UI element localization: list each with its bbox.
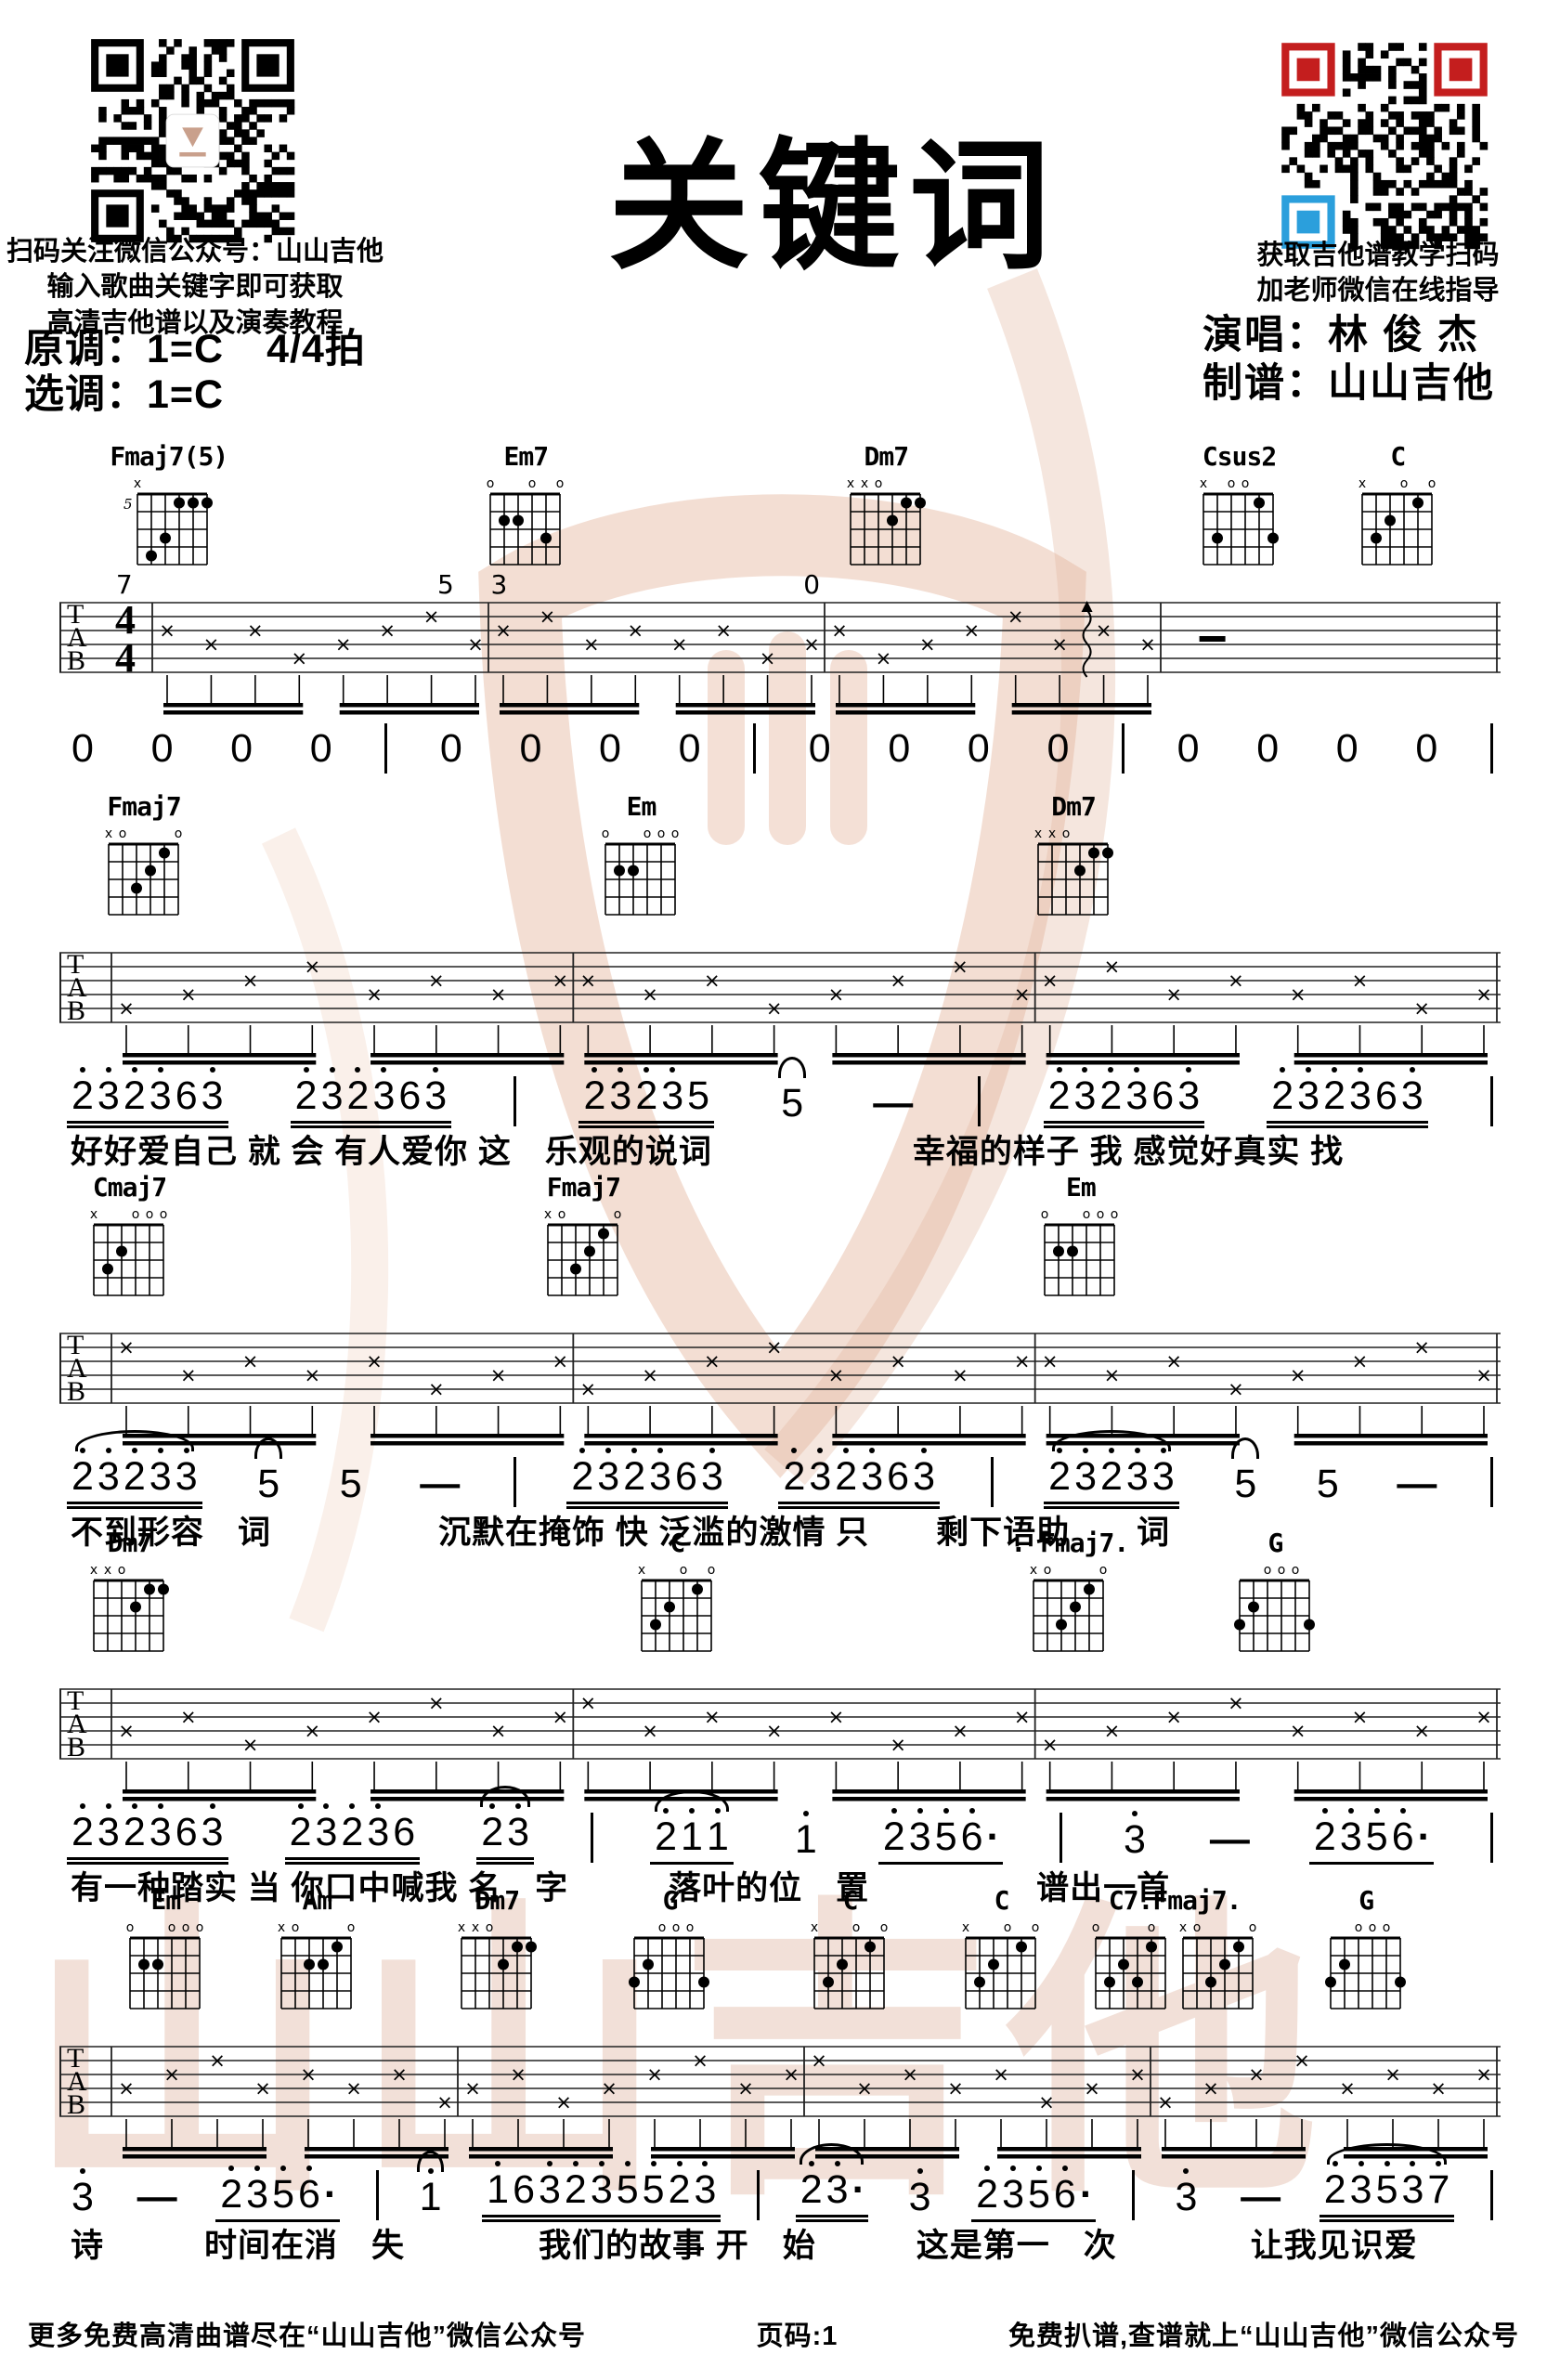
svg-text:×: ×: [1104, 1364, 1121, 1386]
chord-grid: xoo: [276, 1916, 358, 2014]
svg-text:×: ×: [1038, 2091, 1055, 2113]
chord-name: Em: [600, 791, 682, 822]
svg-text:o: o: [1083, 1207, 1091, 1222]
svg-text:×: ×: [671, 633, 688, 656]
svg-text:×: ×: [552, 1350, 569, 1372]
chord-diagram: Csus2xoo: [1198, 441, 1280, 570]
svg-text:×: ×: [1352, 1350, 1369, 1372]
qr-right-caption-line2: 加老师微信在线指导: [1211, 273, 1545, 308]
svg-text:o: o: [486, 1920, 494, 1935]
svg-text:×: ×: [766, 997, 783, 1020]
jianpu-token: 5: [776, 1081, 808, 1128]
svg-text:o: o: [1041, 1207, 1049, 1222]
svg-text:×: ×: [811, 2049, 827, 2072]
svg-text:x: x: [1030, 1563, 1037, 1578]
svg-text:×: ×: [580, 1692, 597, 1714]
svg-text:×: ×: [828, 1706, 845, 1728]
jianpu-token: 232363: [1267, 1073, 1428, 1128]
jianpu-token: 0: [1410, 726, 1442, 774]
jianpu-line: 0000000000000000: [67, 723, 1493, 774]
chord-grid: ooo: [1234, 1558, 1317, 1657]
key-info: 原调：1=C4/4拍 选调：1=C: [24, 327, 366, 419]
svg-text:o: o: [1099, 1563, 1108, 1578]
svg-text:×: ×: [366, 1706, 383, 1728]
svg-text:o: o: [672, 1920, 681, 1935]
jianpu-line: 3—2356·116323552323·32356·3—23537: [67, 2167, 1493, 2222]
system-5: EmooooAmxooDm7xxoGoooCxooCxooC7.Fmaj7.oo…: [59, 1885, 1501, 2256]
chord-grid: ooo: [485, 472, 567, 570]
svg-text:×: ×: [1384, 2063, 1401, 2086]
svg-text:x: x: [104, 826, 111, 841]
svg-text:B: B: [67, 995, 85, 1026]
chord-grid: xxo: [88, 1558, 171, 1657]
jianpu-token: —: [135, 2175, 180, 2222]
svg-text:5: 5: [437, 569, 454, 600]
svg-text:×: ×: [642, 983, 658, 1006]
svg-text:×: ×: [919, 633, 936, 656]
jianpu-token: 5: [1229, 1462, 1261, 1509]
tab-staff: TAB××××××××××××××××××××××××: [59, 1652, 1501, 1812]
chord-grid: xoo: [809, 1916, 891, 2014]
jianpu-token: 0: [963, 726, 994, 774]
chord-grid: xoo: [960, 1916, 1043, 2014]
svg-text:×: ×: [118, 997, 135, 1020]
system-3: Cmaj7xoooFmaj7xooEmooooTAB××××××××××××××…: [59, 1172, 1501, 1543]
svg-text:o: o: [1091, 1920, 1099, 1935]
footer-right: 免费扒谱,查谱就上“山山吉他”微信公众号: [1008, 2314, 1519, 2353]
chord-name: G: [1234, 1528, 1317, 1558]
jianpu-token: 0: [147, 726, 178, 774]
svg-text:5: 5: [123, 496, 133, 513]
svg-text:o: o: [174, 826, 182, 841]
svg-text:×: ×: [379, 619, 396, 642]
chord-name: Em7: [485, 441, 567, 472]
svg-text:3: 3: [490, 569, 507, 600]
svg-text:o: o: [686, 1920, 695, 1935]
jianpu-token: 23233: [1044, 1454, 1179, 1509]
svg-text:o: o: [1228, 476, 1236, 491]
svg-text:×: ×: [467, 633, 484, 656]
chord-grid: xxo: [456, 1916, 539, 2014]
barline: [753, 723, 756, 774]
jianpu-token: 23537: [1319, 2167, 1455, 2222]
chord-name: Dm7: [456, 1885, 539, 1916]
svg-text:×: ×: [601, 2077, 617, 2100]
chord-name: Em: [124, 1885, 207, 1916]
chord-diagram: Dm7xxo: [1033, 791, 1115, 920]
svg-text:B: B: [67, 1732, 85, 1762]
svg-text:o: o: [1264, 1563, 1272, 1578]
jianpu-token: 1: [790, 1817, 822, 1865]
svg-text:×: ×: [1413, 1720, 1430, 1742]
chord-name: Fmaj7(5): [110, 441, 227, 472]
svg-text:×: ×: [1014, 1350, 1031, 1372]
svg-text:x: x: [811, 1920, 818, 1935]
jianpu-token: —: [870, 1081, 916, 1128]
chord-diagram: Gooo: [629, 1885, 711, 2014]
tab-staff: TAB44××××××××××××××××××××××××7530: [59, 566, 1501, 725]
original-key: 原调：1=C: [24, 327, 224, 371]
chord-name: C: [636, 1528, 719, 1558]
svg-text:x: x: [544, 1207, 552, 1222]
svg-text:×: ×: [539, 605, 556, 628]
chord-name: Em: [1039, 1172, 1122, 1203]
svg-text:×: ×: [118, 1720, 135, 1742]
barline: [591, 1813, 593, 1863]
qr-code-right: [1274, 35, 1495, 256]
chord-diagram: Fmaj7xoo: [542, 1172, 625, 1301]
svg-text:o: o: [852, 1920, 861, 1935]
svg-text:×: ×: [304, 1364, 320, 1386]
footer: 更多免费高清曲谱尽在“山山吉他”微信公众号 页码:1 免费扒谱,查谱就上“山山吉…: [0, 2314, 1547, 2353]
jianpu-token: 5: [1312, 1462, 1344, 1509]
chord-diagram: Cxoo: [960, 1885, 1043, 2014]
svg-text:o: o: [680, 1563, 688, 1578]
chord-name: G: [1325, 1885, 1408, 1916]
jianpu-token: 5: [253, 1462, 284, 1509]
lyrics-line: 好好爱自己 就 会 有人爱你 这 乐观的说词 幸福的样子 我 感觉好真实 找: [71, 1125, 1344, 1173]
jianpu-token: 23233: [67, 1454, 202, 1509]
jianpu-token: 3: [1170, 2175, 1202, 2222]
jianpu-line: 232363232363232355—232363232363: [67, 1073, 1493, 1128]
svg-text:×: ×: [1157, 2091, 1174, 2113]
svg-text:o: o: [1368, 1920, 1376, 1935]
svg-text:o: o: [528, 476, 537, 491]
jianpu-token: 23: [476, 1810, 534, 1865]
chord-grid: oooo: [600, 822, 682, 920]
barline: [1490, 2170, 1493, 2220]
jianpu-token: 3: [67, 2175, 98, 2222]
svg-text:×: ×: [391, 2063, 408, 2086]
svg-text:×: ×: [704, 1350, 721, 1372]
svg-text:×: ×: [1014, 983, 1031, 1006]
selected-key: 选调：1=C: [24, 372, 366, 418]
barline: [1490, 723, 1493, 774]
chord-diagram: Cxoo: [1357, 441, 1439, 570]
svg-text:×: ×: [1228, 969, 1244, 992]
svg-text:×: ×: [428, 969, 445, 992]
chord-grid: xoo: [542, 1203, 625, 1301]
svg-text:×: ×: [552, 969, 569, 992]
jianpu-token: 23236: [285, 1810, 421, 1865]
svg-text:×: ×: [831, 619, 848, 642]
jianpu-token: 5: [335, 1462, 367, 1509]
credits: 演唱：林 俊 杰 制谱：山山吉他: [1202, 312, 1495, 408]
svg-text:×: ×: [552, 1706, 569, 1728]
svg-text:o: o: [556, 476, 565, 491]
jianpu-token: 0: [804, 726, 836, 774]
svg-text:×: ×: [335, 633, 352, 656]
jianpu-token: 0: [674, 726, 706, 774]
svg-text:o: o: [708, 1563, 716, 1578]
svg-text:x: x: [1033, 826, 1041, 841]
svg-text:o: o: [1248, 1920, 1256, 1935]
svg-text:×: ×: [890, 1350, 906, 1372]
svg-text:×: ×: [1339, 2077, 1356, 2100]
jianpu-token: 232363: [67, 1810, 228, 1865]
jianpu-token: 23235: [578, 1073, 714, 1128]
svg-text:×: ×: [304, 1720, 320, 1742]
chord-diagram: Dm7xxo: [845, 441, 928, 570]
chord-row: EmooooAmxooDm7xxoGoooCxooCxooC7.Fmaj7.oo…: [59, 1885, 1501, 2009]
svg-text:×: ×: [828, 983, 845, 1006]
svg-text:x: x: [134, 476, 141, 491]
svg-text:×: ×: [1290, 1720, 1306, 1742]
svg-text:o: o: [118, 826, 126, 841]
chord-grid: oo: [1090, 1916, 1173, 2014]
jianpu-token: 3: [904, 2175, 936, 2222]
jianpu-token: 23·: [796, 2167, 868, 2222]
svg-text:×: ×: [783, 2063, 799, 2086]
svg-text:×: ×: [828, 1364, 845, 1386]
chord-diagram: Dm7xxo: [456, 1885, 539, 2014]
svg-text:×: ×: [737, 2077, 754, 2100]
chord-diagram: Emoooo: [600, 791, 682, 920]
svg-text:B: B: [67, 645, 85, 676]
time-signature: 4/4拍: [266, 327, 366, 371]
jianpu-token: 2356·: [1309, 1814, 1434, 1865]
svg-text:o: o: [880, 1920, 889, 1935]
svg-text:×: ×: [952, 1364, 968, 1386]
chord-diagram: Dm7xxo: [88, 1528, 171, 1657]
svg-text:×: ×: [1352, 969, 1369, 992]
svg-text:×: ×: [580, 969, 597, 992]
chord-row: Dm7xxoCxoo. Fmaj7.xooGooo: [59, 1528, 1501, 1652]
chord-diagram: Gooo: [1234, 1528, 1317, 1657]
chord-name: Am: [276, 1885, 358, 1916]
chord-grid: oooo: [124, 1916, 207, 2014]
svg-text:o: o: [602, 826, 610, 841]
chord-diagram: Cxoo: [636, 1528, 719, 1657]
svg-text:×: ×: [1165, 1350, 1182, 1372]
chord-diagram: Em7ooo: [485, 441, 567, 570]
svg-text:×: ×: [1228, 1378, 1244, 1400]
chord-grid: xoo: [1198, 472, 1280, 570]
svg-text:×: ×: [1475, 1706, 1492, 1728]
jianpu-token: 0: [594, 726, 626, 774]
svg-text:×: ×: [1084, 2077, 1100, 2100]
svg-text:o: o: [1032, 1920, 1040, 1935]
chord-grid: xoo: [1357, 472, 1439, 570]
jianpu-token: 0: [305, 726, 337, 774]
svg-text:×: ×: [163, 2063, 180, 2086]
svg-text:o: o: [132, 1207, 140, 1222]
svg-text:×: ×: [766, 1720, 783, 1742]
svg-text:×: ×: [1129, 2063, 1146, 2086]
svg-text:×: ×: [366, 1350, 383, 1372]
svg-text:×: ×: [993, 2063, 1009, 2086]
svg-text:×: ×: [118, 1336, 135, 1359]
svg-text:o: o: [347, 1920, 356, 1935]
jianpu-token: 0: [514, 726, 546, 774]
jianpu-token: 0: [1173, 726, 1204, 774]
chord-name: Fmaj7: [542, 1172, 625, 1203]
jianpu-token: —: [1207, 1817, 1253, 1865]
svg-text:o: o: [1241, 476, 1250, 491]
svg-text:×: ×: [1475, 1364, 1492, 1386]
svg-text:x: x: [472, 1920, 479, 1935]
svg-text:0: 0: [803, 569, 820, 600]
svg-text:×: ×: [159, 619, 175, 642]
singer-line: 演唱：林 俊 杰: [1202, 312, 1495, 360]
svg-text:×: ×: [642, 1720, 658, 1742]
svg-text:×: ×: [642, 1364, 658, 1386]
svg-text:x: x: [1179, 1920, 1187, 1935]
barline: [978, 1076, 981, 1126]
svg-text:×: ×: [1042, 969, 1059, 992]
svg-text:×: ×: [242, 969, 259, 992]
svg-text:×: ×: [1042, 1350, 1059, 1372]
svg-text:×: ×: [510, 2063, 526, 2086]
svg-text:×: ×: [1413, 997, 1430, 1020]
chord-diagram: Emoooo: [124, 1885, 207, 2014]
svg-text:×: ×: [242, 1350, 259, 1372]
barline: [513, 1076, 516, 1126]
chord-grid: xoo: [1028, 1558, 1111, 1657]
svg-text:×: ×: [247, 619, 264, 642]
svg-text:o: o: [614, 1207, 622, 1222]
svg-text:×: ×: [1014, 1706, 1031, 1728]
jianpu-token: 0: [67, 726, 98, 774]
svg-text:×: ×: [428, 1378, 445, 1400]
jianpu-token: 232363: [566, 1454, 728, 1509]
svg-text:x: x: [1358, 476, 1366, 491]
svg-text:×: ×: [704, 969, 721, 992]
svg-text:o: o: [875, 476, 883, 491]
svg-text:o: o: [1147, 1920, 1155, 1935]
svg-text:o: o: [182, 1920, 190, 1935]
svg-text:o: o: [168, 1920, 176, 1935]
svg-text:×: ×: [766, 1336, 783, 1359]
chord-grid: xoo: [103, 822, 186, 920]
svg-text:o: o: [1400, 476, 1409, 491]
chord-diagram: Amxoo: [276, 1885, 358, 2014]
chord-grid: ooo: [629, 1916, 711, 2014]
svg-text:×: ×: [254, 2077, 271, 2100]
svg-text:×: ×: [304, 956, 320, 978]
svg-text:×: ×: [952, 956, 968, 978]
svg-text:×: ×: [856, 2077, 873, 2100]
chord-row: Cmaj7xoooFmaj7xooEmoooo: [59, 1172, 1501, 1296]
svg-text:x: x: [861, 476, 868, 491]
chord-name: Cmaj7: [88, 1172, 171, 1203]
barline: [1490, 1813, 1493, 1863]
svg-text:×: ×: [242, 1734, 259, 1756]
chord-grid: xxo: [845, 472, 928, 570]
svg-text:×: ×: [1007, 605, 1024, 628]
svg-text:o: o: [118, 1563, 126, 1578]
svg-text:o: o: [657, 826, 666, 841]
jianpu-token: —: [1238, 2175, 1283, 2222]
svg-text:×: ×: [1430, 2077, 1447, 2100]
system-4: Dm7xxoCxoo. Fmaj7.xooGoooTAB××××××××××××…: [59, 1528, 1501, 1899]
chord-name: Dm7: [88, 1528, 171, 1558]
chord-grid: ooo: [1325, 1916, 1408, 2014]
chord-row: Fmaj7(5)x5Em7oooDm7xxoCsus2xooCxoo: [59, 441, 1501, 566]
chord-name: Fmaj7: [103, 791, 186, 822]
barline: [757, 2170, 760, 2220]
svg-text:×: ×: [423, 605, 440, 628]
jianpu-token: 163235523: [482, 2167, 721, 2222]
svg-text:×: ×: [555, 2091, 572, 2113]
svg-text:o: o: [1097, 1207, 1105, 1222]
svg-text:×: ×: [464, 2077, 481, 2100]
svg-text:x: x: [278, 1920, 285, 1935]
chord-name: C: [960, 1885, 1043, 1916]
svg-text:B: B: [67, 2089, 85, 2120]
barline: [1132, 2170, 1135, 2220]
svg-text:o: o: [1428, 476, 1436, 491]
svg-text:×: ×: [1202, 2077, 1219, 2100]
chord-name: Csus2: [1198, 441, 1280, 472]
barline: [1490, 1457, 1493, 1507]
svg-text:×: ×: [952, 1720, 968, 1742]
svg-text:×: ×: [1051, 633, 1068, 656]
chord-row: Fmaj7xooEmooooDm7xxo: [59, 791, 1501, 916]
sheet-page: 山山吉他 扫码关注微信公众号：山山吉他 输入歌曲关键字即可获取 高清吉他谱以及演…: [0, 0, 1547, 2380]
footer-left: 更多免费高清曲谱尽在“山山吉他”微信公众号: [28, 2314, 586, 2353]
svg-text:×: ×: [583, 633, 600, 656]
svg-text:o: o: [160, 1207, 168, 1222]
jianpu-token: 2356·: [215, 2172, 340, 2222]
svg-text:o: o: [292, 1920, 300, 1935]
tab-staff: TAB××××××××××××××××××××××××: [59, 916, 1501, 1075]
svg-text:×: ×: [180, 1706, 197, 1728]
chord-grid: xoo: [1177, 1916, 1260, 2014]
jianpu-token: 0: [226, 726, 257, 774]
svg-text:×: ×: [1475, 2063, 1492, 2086]
svg-text:4: 4: [115, 635, 136, 681]
svg-text:x: x: [1200, 476, 1207, 491]
jianpu-token: —: [1394, 1462, 1439, 1509]
jianpu-token: 232363: [778, 1454, 940, 1509]
svg-text:×: ×: [1290, 983, 1306, 1006]
barline: [1122, 723, 1124, 774]
barline: [1059, 1813, 1062, 1863]
svg-text:o: o: [1354, 1920, 1362, 1935]
svg-text:×: ×: [495, 619, 512, 642]
svg-text:×: ×: [490, 983, 507, 1006]
system-1: Fmaj7(5)x5Em7oooDm7xxoCsus2xooCxooTAB44×…: [59, 441, 1501, 813]
svg-text:o: o: [196, 1920, 204, 1935]
system-2: Fmaj7xooEmooooDm7xxoTAB×××××××××××××××××…: [59, 791, 1501, 1163]
chord-grid: oooo: [1039, 1203, 1122, 1301]
svg-text:×: ×: [963, 619, 980, 642]
chord-name: G: [629, 1885, 711, 1916]
jianpu-token: 0: [883, 726, 915, 774]
svg-text:×: ×: [947, 2077, 964, 2100]
svg-text:×: ×: [366, 983, 383, 1006]
chord-name: C: [1357, 441, 1439, 472]
jianpu-token: 0: [1042, 726, 1073, 774]
svg-text:o: o: [1278, 1563, 1286, 1578]
jianpu-token: 0: [1252, 726, 1283, 774]
jianpu-token: 1: [415, 2175, 447, 2222]
svg-text:o: o: [1382, 1920, 1390, 1935]
svg-text:×: ×: [627, 619, 643, 642]
jianpu-token: 0: [435, 726, 467, 774]
svg-text:×: ×: [890, 969, 906, 992]
chord-name: . Fmaj7.: [1010, 1528, 1128, 1558]
svg-text:×: ×: [760, 647, 776, 670]
barline: [376, 2170, 379, 2220]
page-number: 页码:1: [757, 2314, 838, 2353]
chord-name: C7.Fmaj7.: [1090, 1885, 1260, 1916]
jianpu-token: 2356·: [971, 2172, 1096, 2222]
tab-staff: TAB××××××××××××××××××××××××××××××××: [59, 2009, 1501, 2169]
svg-text:×: ×: [1104, 956, 1121, 978]
svg-text:×: ×: [1293, 2049, 1310, 2072]
